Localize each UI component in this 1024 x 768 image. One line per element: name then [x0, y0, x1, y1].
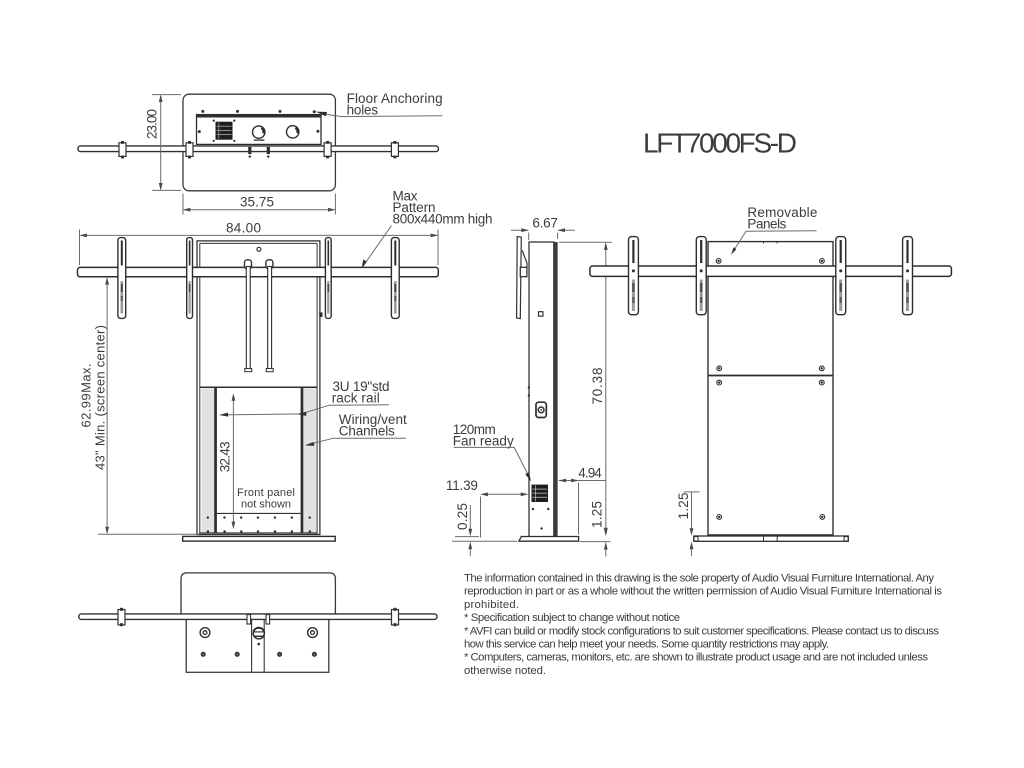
- svg-text:rack rail: rack rail: [332, 391, 380, 406]
- svg-text:LFT7000FS-D: LFT7000FS-D: [643, 128, 797, 159]
- svg-text:The information contained in t: The information contained in this drawin…: [464, 573, 934, 585]
- svg-text:32.43: 32.43: [217, 441, 232, 472]
- svg-text:holes: holes: [347, 103, 379, 118]
- svg-text:Front panel: Front panel: [237, 487, 295, 499]
- svg-text:reproduction in part or as a w: reproduction in part or as a whole witho…: [464, 586, 942, 598]
- svg-text:Fan ready: Fan ready: [453, 433, 514, 448]
- svg-text:62.99Max.: 62.99Max.: [79, 364, 94, 428]
- svg-text:70.38: 70.38: [590, 368, 605, 405]
- svg-text:84.00: 84.00: [226, 221, 261, 236]
- svg-text:prohibited.: prohibited.: [464, 599, 519, 611]
- svg-text:Channels: Channels: [339, 424, 395, 439]
- svg-text:1.25: 1.25: [590, 501, 605, 528]
- svg-text:23.00: 23.00: [145, 109, 160, 139]
- svg-text:800x440mm high: 800x440mm high: [393, 212, 493, 227]
- svg-text:35.75: 35.75: [240, 194, 274, 209]
- svg-text:11.39: 11.39: [446, 478, 478, 493]
- svg-text:Panels: Panels: [747, 217, 786, 232]
- svg-text:otherwise noted.: otherwise noted.: [464, 665, 546, 677]
- svg-text:43" Min. (screen center): 43" Min. (screen center): [93, 325, 108, 470]
- svg-text:* Computers, cameras, monitors: * Computers, cameras, monitors, etc. are…: [464, 652, 928, 664]
- svg-text:* Specification subject to cha: * Specification subject to change withou…: [464, 612, 680, 624]
- svg-text:4.94: 4.94: [578, 465, 602, 480]
- svg-text:1.25: 1.25: [676, 493, 691, 520]
- svg-text:how this service can help meet: how this service can help meet your need…: [464, 639, 829, 651]
- svg-text:not shown: not shown: [241, 498, 291, 510]
- svg-text:0.25: 0.25: [455, 503, 470, 530]
- svg-text:6.67: 6.67: [532, 215, 558, 230]
- svg-text:* AVFI can build or modify sto: * AVFI can build or modify stock configu…: [464, 625, 939, 637]
